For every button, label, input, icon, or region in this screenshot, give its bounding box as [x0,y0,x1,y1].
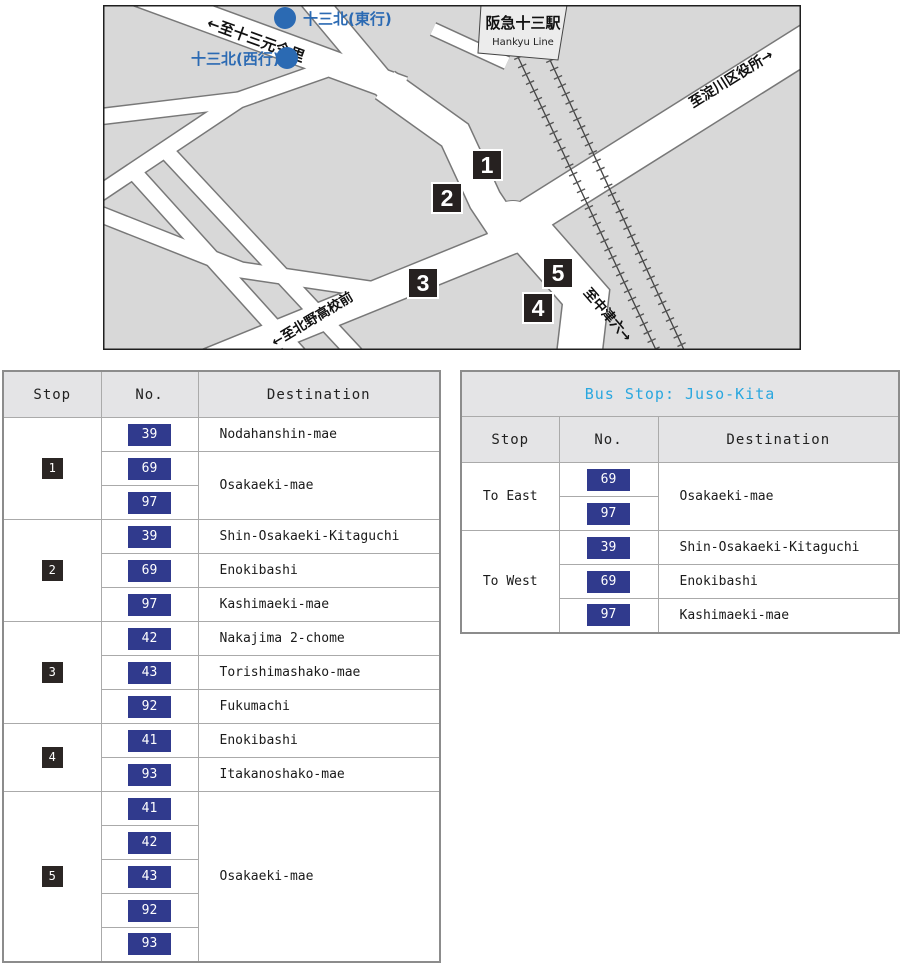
route-cell: 42 [101,826,198,860]
table-title-row: Bus Stop: Juso-Kita [461,371,899,417]
destination-cell: Osakaeki-mae [198,792,440,962]
route-badge: 41 [128,798,171,820]
destination-cell: Torishimashako-mae [198,656,440,690]
table-header-row: Stop No. Destination [3,371,440,418]
header-stop: Stop [3,371,101,418]
route-cell: 97 [101,486,198,520]
route-badge: 42 [128,832,171,854]
destination-cell: Enokibashi [198,724,440,758]
map-marker-5: 5 [543,258,573,288]
svg-text:5: 5 [552,260,565,286]
route-badge: 92 [128,696,171,718]
destination-cell: Nodahanshin-mae [198,418,440,452]
direction-cell-west: To West [461,531,559,633]
stop-number-badge: 4 [42,747,63,768]
header-no: No. [101,371,198,418]
route-cell: 69 [559,463,658,497]
route-cell: 39 [101,418,198,452]
table-row: To East 69 Osakaeki-mae [461,463,899,497]
route-cell: 92 [101,690,198,724]
route-badge: 69 [587,469,630,491]
map-marker-3: 3 [408,268,438,298]
route-badge: 69 [128,560,171,582]
route-badge: 93 [128,933,171,955]
route-cell: 41 [101,724,198,758]
stop-number-badge: 3 [42,662,63,683]
stop-number-badge: 5 [42,866,63,887]
table-row: 3 42 Nakajima 2-chome [3,622,440,656]
route-badge: 39 [587,537,630,559]
header-stop: Stop [461,417,559,463]
station-name-label: 阪急十三駅 [485,14,561,32]
route-cell: 43 [101,860,198,894]
juso-kita-table: Bus Stop: Juso-Kita Stop No. Destination… [460,370,900,634]
route-cell: 97 [559,599,658,633]
bus-point-west-label: 十三北(西行) [191,50,280,68]
route-cell: 97 [559,497,658,531]
route-badge: 39 [128,424,171,446]
route-badge: 42 [128,628,171,650]
destination-cell: Nakajima 2-chome [198,622,440,656]
area-map: 阪急十三駅 Hankyu Line ←至十三元今里 至淀川区役所→ ←至北野高校… [103,5,801,350]
route-badge: 92 [128,900,171,922]
route-cell: 43 [101,656,198,690]
route-cell: 92 [101,894,198,928]
table-row: To West 39 Shin-Osakaeki-Kitaguchi [461,531,899,565]
route-cell: 41 [101,792,198,826]
svg-text:4: 4 [532,295,545,321]
route-cell: 69 [559,565,658,599]
destination-cell: Osakaeki-mae [658,463,899,531]
route-badge: 69 [128,458,171,480]
route-badge: 93 [128,764,171,786]
header-no: No. [559,417,658,463]
stop-number-badge: 1 [42,458,63,479]
map-marker-1: 1 [472,150,502,180]
svg-text:2: 2 [441,185,454,211]
stops-table: Stop No. Destination 1 39 Nodahanshin-ma… [2,370,441,963]
destination-cell: Osakaeki-mae [198,452,440,520]
stop-cell-3: 3 [3,622,101,724]
table-row: 1 39 Nodahanshin-mae [3,418,440,452]
stop-cell-2: 2 [3,520,101,622]
svg-text:1: 1 [481,152,494,178]
stop-cell-1: 1 [3,418,101,520]
destination-cell: Shin-Osakaeki-Kitaguchi [658,531,899,565]
table-header-row: Stop No. Destination [461,417,899,463]
destination-cell: Enokibashi [198,554,440,588]
destination-cell: Kashimaeki-mae [658,599,899,633]
route-badge: 39 [128,526,171,548]
header-destination: Destination [198,371,440,418]
route-cell: 93 [101,758,198,792]
route-cell: 69 [101,554,198,588]
stop-cell-5: 5 [3,792,101,962]
station-line-label: Hankyu Line [492,37,554,48]
route-cell: 97 [101,588,198,622]
route-cell: 39 [559,531,658,565]
route-badge: 69 [587,571,630,593]
stop-number-badge: 2 [42,560,63,581]
destination-cell: Enokibashi [658,565,899,599]
route-badge: 41 [128,730,171,752]
bus-point-east-dot [274,7,296,29]
route-badge: 97 [128,492,171,514]
bus-point-east-label: 十三北(東行) [303,10,392,28]
map-marker-2: 2 [432,183,462,213]
table-row: 5 41 Osakaeki-mae [3,792,440,826]
table-row: 2 39 Shin-Osakaeki-Kitaguchi [3,520,440,554]
destination-cell: Fukumachi [198,690,440,724]
stop-cell-4: 4 [3,724,101,792]
table-title: Bus Stop: Juso-Kita [461,371,899,417]
destination-cell: Shin-Osakaeki-Kitaguchi [198,520,440,554]
table-row: 4 41 Enokibashi [3,724,440,758]
route-badge: 43 [128,866,171,888]
direction-cell-east: To East [461,463,559,531]
route-cell: 39 [101,520,198,554]
map-marker-4: 4 [523,293,553,323]
route-cell: 93 [101,928,198,962]
destination-cell: Kashimaeki-mae [198,588,440,622]
route-badge: 97 [587,503,630,525]
svg-text:3: 3 [417,270,430,296]
route-badge: 97 [128,594,171,616]
route-cell: 69 [101,452,198,486]
route-badge: 43 [128,662,171,684]
route-badge: 97 [587,604,630,626]
destination-cell: Itakanoshako-mae [198,758,440,792]
header-destination: Destination [658,417,899,463]
route-cell: 42 [101,622,198,656]
